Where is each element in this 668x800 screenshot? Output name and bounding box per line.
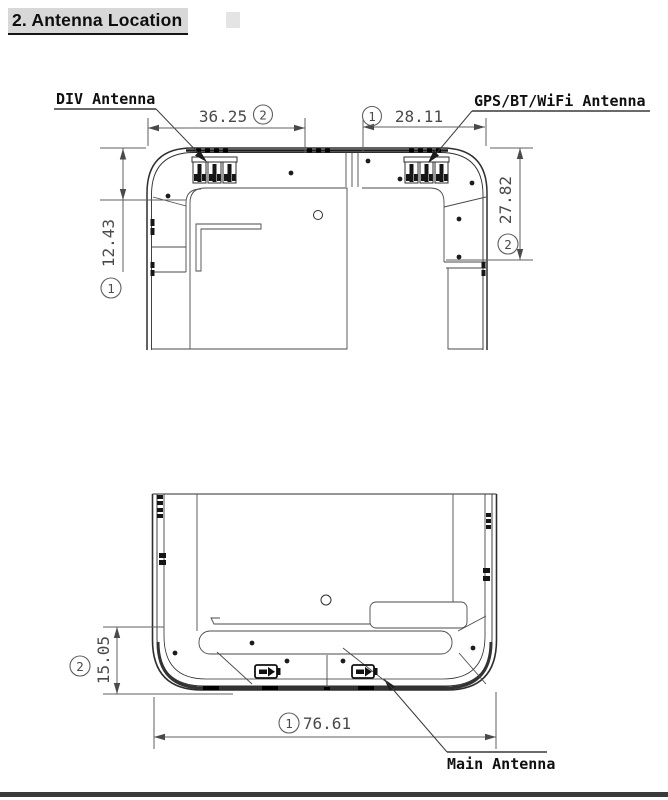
bottom-view-hole [321,595,331,605]
dim-ref: 1 [285,716,293,731]
connector-icon-left [255,665,281,678]
footer-divider-bar [0,792,668,797]
dim-bottom-width: 1 76.61 [154,692,496,749]
dim-ref: 2 [504,237,512,252]
bottom-view-drawing: 15.05 2 1 76.61 Main Antenna [70,494,555,773]
dim-ref: 1 [107,281,115,296]
bottom-view-outer-outline [153,494,497,690]
dim-top-width-right: 1 28.11 [363,107,487,153]
main-antenna-label: Main Antenna [447,755,555,773]
dim-ref: 1 [368,109,376,124]
top-view-hole [314,211,323,220]
bottom-view-interior-lines [197,494,486,687]
div-antenna-block [192,157,237,183]
dim-bottom-height-left: 15.05 2 [70,627,233,694]
antenna-location-drawing: DIV Antenna GPS/BT/WiFi Antenna 36.25 2 [0,0,668,800]
top-view-drawing: DIV Antenna GPS/BT/WiFi Antenna 36.25 2 [54,90,650,350]
dim-top-height-left: 12.43 1 [99,148,186,298]
page: { "document": { "section_title": "2. Ant… [0,0,668,800]
dim-value: 36.25 [199,107,247,126]
dim-value: 27.82 [496,176,515,224]
div-antenna-label: DIV Antenna [56,90,155,108]
div-antenna-callout: DIV Antenna [54,90,207,162]
dim-ref: 2 [259,108,267,123]
bottom-view-screw-dots [173,641,476,664]
dim-value: 28.11 [395,107,443,126]
connector-icon-right [352,665,378,678]
bottom-view-side-marks [157,495,491,581]
bottom-view-inner-wall [164,494,485,679]
dim-top-width-left: 36.25 2 [148,105,305,153]
gps-bt-wifi-antenna-block [404,157,449,183]
bottom-view-mid-outline [157,494,492,686]
bottom-rim [158,642,491,688]
dim-value: 15.05 [94,636,113,684]
gps-bt-wifi-antenna-label: GPS/BT/WiFi Antenna [474,92,646,110]
dim-value: 12.43 [99,219,118,267]
dim-ref: 2 [76,659,84,674]
dim-value: 76.61 [303,714,351,733]
main-antenna-callout: Main Antenna [384,679,555,773]
dim-top-height-right: 27.82 2 [446,148,533,260]
